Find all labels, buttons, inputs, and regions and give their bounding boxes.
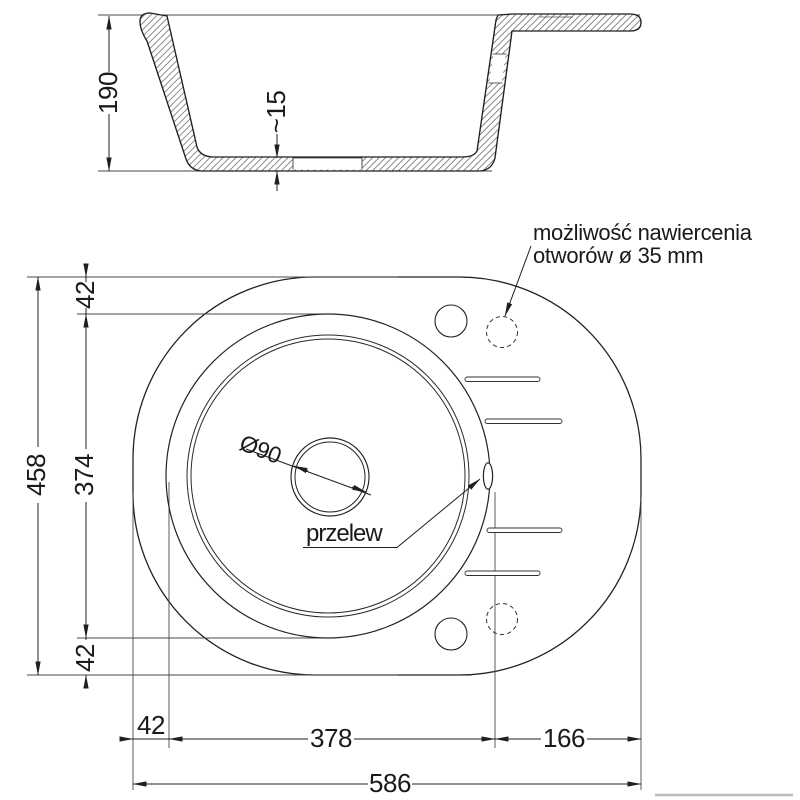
dim-offset-bottom-label: 42 xyxy=(70,644,100,672)
drill-note-line2: otworów ø 35 mm xyxy=(533,243,703,268)
dim-offset-left-label: 42 xyxy=(137,710,165,740)
dim-total-height-label: 458 xyxy=(21,454,51,496)
dim-drainer-zone-label: 166 xyxy=(543,723,585,753)
tap-hole-bottom xyxy=(435,618,467,650)
dim-offset-top-label: 42 xyxy=(70,281,100,309)
drainer-groove xyxy=(485,419,562,424)
dim-recess-label: ~15 xyxy=(261,91,291,134)
sink-outline xyxy=(133,277,641,675)
dim-bowl-outer-label: 374 xyxy=(69,454,99,496)
dim-depth-label: 190 xyxy=(93,72,123,114)
drainer-groove xyxy=(465,571,540,576)
dim-bowl-zone-label: 378 xyxy=(310,723,352,753)
overflow-slot xyxy=(483,463,492,489)
section-profile-outline xyxy=(140,13,641,171)
dim-total-width-label: 586 xyxy=(369,768,411,798)
drain-recess xyxy=(293,158,362,170)
section-view: 190 ~15 xyxy=(93,13,641,191)
drill-note-line1: możliwość nawiercenia xyxy=(533,220,753,245)
drainer-groove xyxy=(465,377,540,382)
plan-view: Ø90 przelew możliwość nawiercenia otworó… xyxy=(27,220,753,790)
section-profile-hatch xyxy=(140,13,641,171)
tap-hole-top xyxy=(435,305,467,337)
technical-drawing-sink: 190 ~15 xyxy=(0,0,800,800)
overflow-label: przelew xyxy=(306,520,383,547)
drainer-groove xyxy=(487,528,562,533)
section-profile-fill xyxy=(140,13,641,171)
